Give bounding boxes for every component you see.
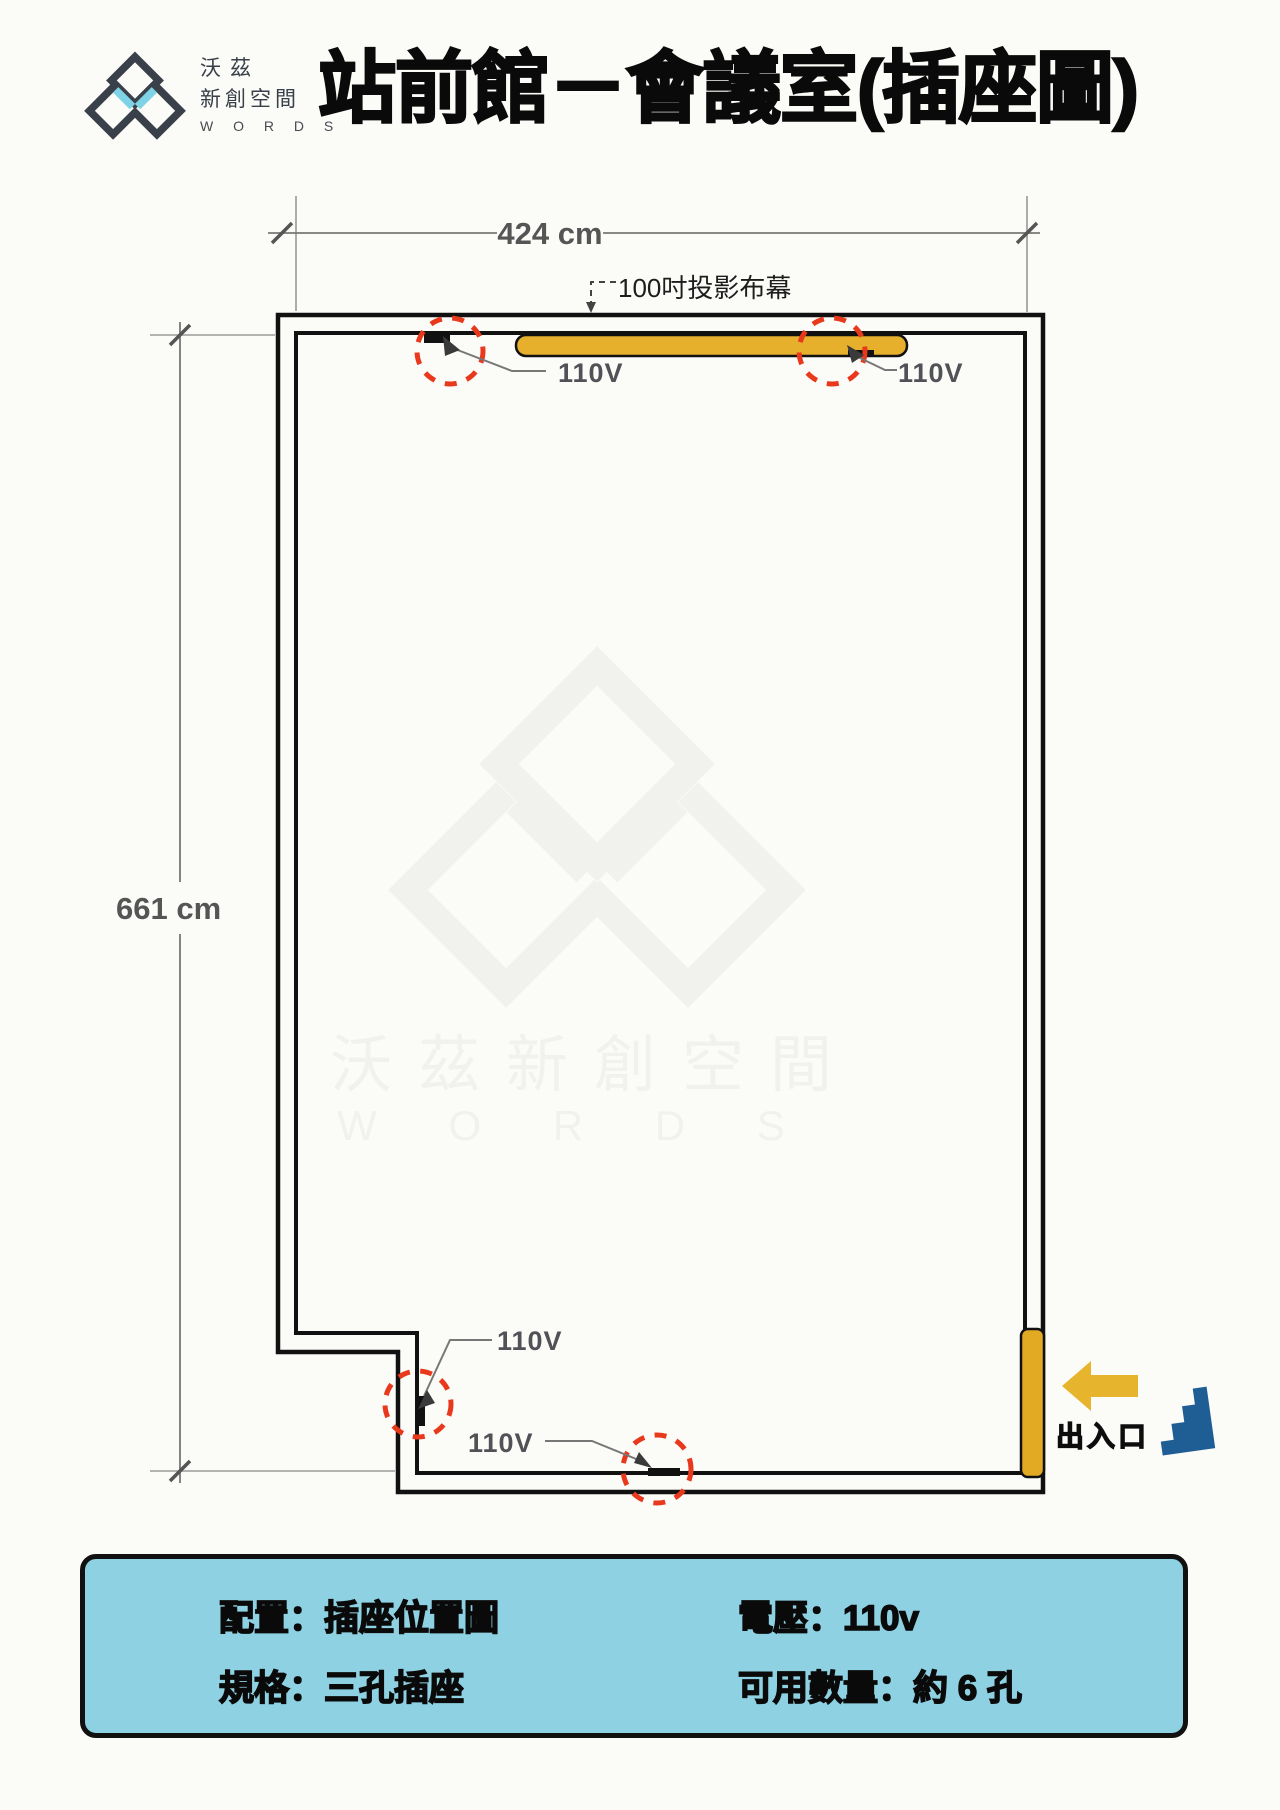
room-outer-wall xyxy=(278,315,1043,1492)
watermark-logo-icon xyxy=(408,666,786,988)
outlet-voltage-label-4: 110V xyxy=(468,1428,534,1459)
info-spec-label: 規格：三孔插座 xyxy=(219,1660,464,1711)
width-dimension-label: 424 cm xyxy=(480,216,620,252)
stairs-icon xyxy=(1154,1387,1215,1456)
entrance-door xyxy=(1021,1329,1044,1477)
screen-leader xyxy=(586,282,616,313)
outlet-voltage-label-1: 110V xyxy=(558,358,624,389)
projector-screen-label: 100吋投影布幕 xyxy=(618,268,791,305)
leader-lines xyxy=(424,349,897,1463)
info-layout-label: 配置：插座位置圖 xyxy=(219,1590,499,1641)
height-dimension-label: 661 cm xyxy=(116,891,220,927)
leader-arrowheads xyxy=(418,336,864,1468)
outlet-marks xyxy=(417,334,874,1476)
watermark-cjk-text: 沃茲新創空間 xyxy=(330,1014,822,1104)
info-voltage-label: 電壓：110v xyxy=(738,1590,919,1641)
screen-leader-arrow xyxy=(586,302,596,313)
watermark-latin-text: W O R D S xyxy=(330,1102,822,1150)
info-quantity-label: 可用數量：約 6 孔 xyxy=(738,1660,1022,1711)
info-box: 配置：插座位置圖 電壓：110v 規格：三孔插座 可用數量：約 6 孔 xyxy=(80,1554,1188,1738)
outlet-voltage-label-2: 110V xyxy=(898,358,964,389)
entrance-arrow-icon xyxy=(1062,1361,1138,1411)
outlet-voltage-label-3: 110V xyxy=(497,1326,563,1357)
entrance-label: 出入口 xyxy=(1056,1415,1149,1455)
page: 沃茲 新創空間 W O R D S 站前館－會議室(插座圖) xyxy=(0,0,1280,1810)
